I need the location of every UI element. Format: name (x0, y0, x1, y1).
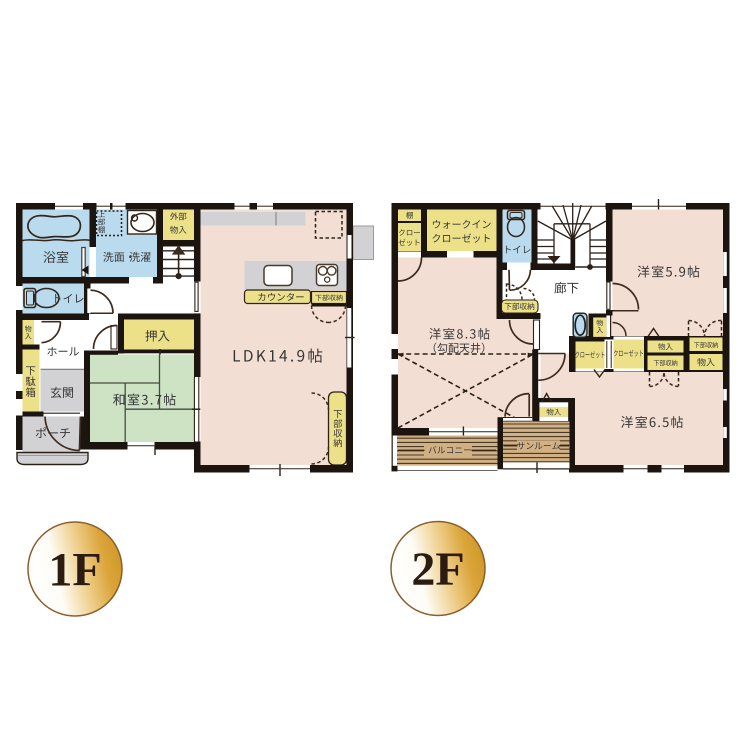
svg-text:1F: 1F (48, 544, 101, 597)
svg-text:2F: 2F (411, 543, 464, 596)
